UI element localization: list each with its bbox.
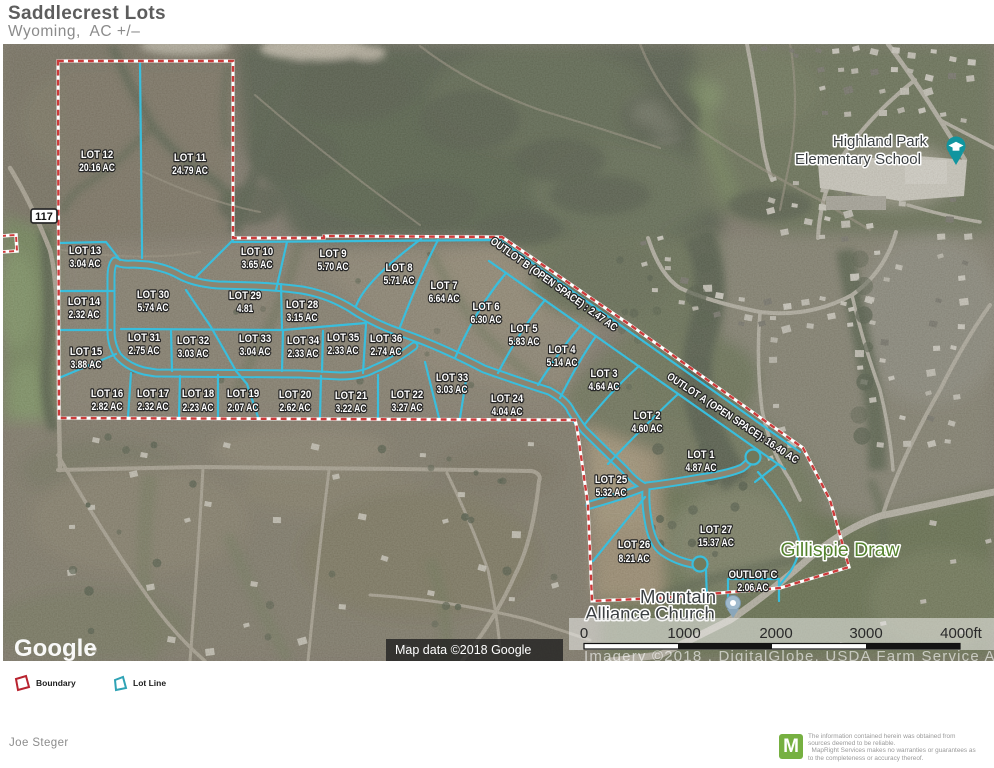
svg-text:Google: Google — [14, 635, 97, 662]
svg-text:3.15 AC: 3.15 AC — [286, 312, 317, 324]
svg-text:LOT 3: LOT 3 — [591, 368, 618, 380]
svg-text:3.22 AC: 3.22 AC — [335, 403, 366, 415]
svg-text:LOT 18: LOT 18 — [182, 388, 214, 400]
svg-text:3000: 3000 — [849, 625, 882, 642]
svg-text:8.21 AC: 8.21 AC — [618, 553, 649, 565]
svg-text:5.83 AC: 5.83 AC — [508, 336, 539, 348]
svg-text:6.64 AC: 6.64 AC — [428, 293, 459, 305]
svg-text:LOT 31: LOT 31 — [128, 332, 160, 344]
svg-text:LOT 34: LOT 34 — [287, 335, 319, 347]
svg-text:20.16 AC: 20.16 AC — [79, 162, 115, 174]
svg-text:3.88 AC: 3.88 AC — [70, 359, 101, 371]
svg-text:2.32 AC: 2.32 AC — [68, 309, 99, 321]
svg-text:OUTLOT C: OUTLOT C — [729, 569, 778, 581]
svg-text:2.82 AC: 2.82 AC — [91, 401, 122, 413]
svg-text:LOT 6: LOT 6 — [473, 301, 500, 313]
svg-text:Imagery ©2018 , DigitalGlobe,: Imagery ©2018 , DigitalGlobe, USDA Farm … — [584, 648, 994, 665]
svg-text:2.06 AC: 2.06 AC — [737, 582, 768, 594]
svg-text:LOT 35: LOT 35 — [327, 332, 359, 344]
svg-text:LOT 5: LOT 5 — [511, 323, 538, 335]
svg-text:4.81: 4.81 — [237, 303, 254, 315]
svg-text:2000: 2000 — [759, 625, 792, 642]
svg-text:LOT 9: LOT 9 — [320, 248, 347, 260]
svg-text:LOT 8: LOT 8 — [386, 262, 413, 274]
svg-text:3.04 AC: 3.04 AC — [69, 258, 100, 270]
svg-text:Highland Park: Highland Park — [833, 133, 928, 150]
svg-text:LOT 20: LOT 20 — [279, 389, 311, 401]
svg-text:3.65 AC: 3.65 AC — [241, 259, 272, 271]
svg-text:5.32 AC: 5.32 AC — [595, 487, 626, 499]
svg-text:4.64 AC: 4.64 AC — [588, 381, 619, 393]
svg-text:LOT 33: LOT 33 — [436, 372, 468, 384]
svg-text:LOT 15: LOT 15 — [70, 346, 102, 358]
svg-text:2.07 AC: 2.07 AC — [227, 402, 258, 414]
svg-text:Map data ©2018 Google: Map data ©2018 Google — [395, 643, 531, 657]
svg-text:3.27 AC: 3.27 AC — [391, 402, 422, 414]
svg-text:LOT 4: LOT 4 — [549, 344, 576, 356]
svg-text:LOT 19: LOT 19 — [227, 388, 259, 400]
svg-text:3.03 AC: 3.03 AC — [177, 348, 208, 360]
svg-text:2.62 AC: 2.62 AC — [279, 402, 310, 414]
svg-text:LOT 10: LOT 10 — [241, 246, 273, 258]
svg-text:2.33 AC: 2.33 AC — [327, 345, 358, 357]
svg-text:5.71 AC: 5.71 AC — [383, 275, 414, 287]
svg-text:6.30 AC: 6.30 AC — [470, 314, 501, 326]
svg-text:LOT 25: LOT 25 — [595, 474, 627, 486]
svg-text:LOT 22: LOT 22 — [391, 389, 423, 401]
svg-text:LOT 26: LOT 26 — [618, 539, 650, 551]
svg-text:5.70 AC: 5.70 AC — [317, 261, 348, 273]
svg-text:LOT 1: LOT 1 — [688, 449, 715, 461]
svg-text:24.79 AC: 24.79 AC — [172, 165, 208, 177]
svg-text:Gillispie Draw: Gillispie Draw — [780, 539, 900, 561]
svg-text:LOT 28: LOT 28 — [286, 299, 318, 311]
svg-text:LOT 13: LOT 13 — [69, 245, 101, 257]
svg-text:0: 0 — [580, 625, 588, 642]
svg-text:3.03 AC: 3.03 AC — [436, 384, 467, 396]
svg-text:4.87 AC: 4.87 AC — [685, 462, 716, 474]
svg-text:2.33 AC: 2.33 AC — [287, 348, 318, 360]
svg-text:Boundary: Boundary — [36, 678, 76, 688]
svg-text:2.75 AC: 2.75 AC — [128, 345, 159, 357]
svg-text:Elementary School: Elementary School — [795, 151, 921, 168]
svg-text:LOT 11: LOT 11 — [174, 152, 206, 164]
svg-text:Lot Line: Lot Line — [133, 678, 166, 688]
svg-text:LOT 14: LOT 14 — [68, 296, 100, 308]
svg-text:4.04 AC: 4.04 AC — [491, 406, 522, 418]
svg-text:LOT 16: LOT 16 — [91, 388, 123, 400]
svg-text:LOT 21: LOT 21 — [335, 390, 367, 402]
svg-text:LOT 7: LOT 7 — [431, 280, 458, 292]
svg-text:2.23 AC: 2.23 AC — [182, 402, 213, 414]
svg-text:15.37 AC: 15.37 AC — [698, 537, 734, 549]
svg-text:LOT 27: LOT 27 — [700, 524, 732, 536]
svg-text:3.04 AC: 3.04 AC — [239, 346, 270, 358]
svg-text:117: 117 — [35, 211, 53, 223]
svg-text:2.32 AC: 2.32 AC — [137, 401, 168, 413]
svg-text:LOT 2: LOT 2 — [634, 410, 661, 422]
svg-text:4.60 AC: 4.60 AC — [631, 423, 662, 435]
svg-text:4000ft: 4000ft — [940, 625, 983, 642]
svg-text:LOT 17: LOT 17 — [137, 388, 169, 400]
svg-text:5.74 AC: 5.74 AC — [137, 302, 168, 314]
svg-text:1000: 1000 — [667, 625, 700, 642]
svg-text:LOT 29: LOT 29 — [229, 290, 261, 302]
svg-text:LOT 30: LOT 30 — [137, 289, 169, 301]
svg-text:LOT 24: LOT 24 — [491, 393, 523, 405]
svg-text:LOT 33: LOT 33 — [239, 333, 271, 345]
svg-text:LOT 36: LOT 36 — [370, 333, 402, 345]
svg-text:5.14 AC: 5.14 AC — [546, 357, 577, 369]
svg-text:LOT 12: LOT 12 — [81, 149, 113, 161]
svg-text:LOT 32: LOT 32 — [177, 335, 209, 347]
svg-text:2.74 AC: 2.74 AC — [370, 346, 401, 358]
